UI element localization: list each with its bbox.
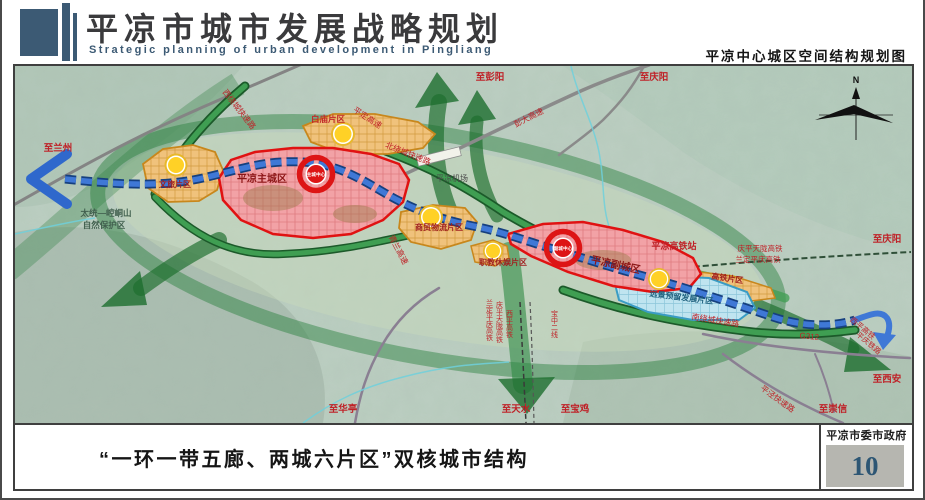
city-core-label: 主城中心 [307, 171, 326, 178]
page-subtitle: Strategic planning of urban development … [89, 44, 493, 56]
caption: “一环一带五廊、两城六片区”双核城市结构 [99, 425, 529, 489]
info-box: 平凉市委市政府 10 [819, 425, 912, 489]
map-title: 平凉中心城区空间结构规划图 [706, 45, 908, 65]
destination-label: 至庆阳 [640, 71, 669, 83]
district-label: 白庙片区 [311, 114, 346, 124]
railway-label: 庆平天陇高铁 [738, 243, 783, 253]
destination-label: 至崇信 [819, 403, 848, 415]
compass-label: N [853, 75, 860, 85]
destination-label: 至华亭 [329, 403, 358, 415]
district-label: 商贸物流片区 [415, 222, 463, 232]
logo-bar [62, 3, 70, 61]
station-label: 平凉机场 [436, 173, 468, 183]
city-label: 平凉主城区 [237, 172, 287, 185]
planning-map: 主城中心 副城中心 N 平凉主城区 平凉副城区 文旅片区 白庙片区 [15, 66, 912, 423]
railway-label: 庆平天陇高铁 [496, 300, 504, 344]
page-number: 10 [826, 445, 904, 487]
district-center-icon [331, 122, 355, 146]
nature-reserve-label: 太统—崆峒山 [79, 208, 131, 218]
railway-label: 宝中二线 [551, 309, 559, 338]
map-frame: 主城中心 副城中心 N 平凉主城区 平凉副城区 文旅片区 白庙片区 [13, 64, 914, 425]
destination-label: 至宝鸡 [561, 403, 590, 415]
footer: “一环一带五廊、两城六片区”双核城市结构 平凉市委市政府 10 [13, 425, 914, 491]
railway-label: 兰定平庆高铁 [736, 254, 781, 264]
district-label: 文旅片区 [159, 179, 191, 189]
destination-label: 至兰州 [44, 142, 73, 154]
destination-label: 至彭阳 [476, 71, 505, 83]
destination-label: 至天水 [502, 403, 531, 415]
district-center-icon [165, 154, 188, 177]
district-label: 职教休娱片区 [479, 257, 527, 267]
station-label: 平凉高铁站 [651, 240, 696, 251]
city-core-label: 副城中心 [554, 245, 573, 252]
destination-label: 至西安 [873, 373, 902, 385]
slide-page: 平凉市城市发展战略规划 Strategic planning of urban … [0, 0, 925, 500]
logo-mark [20, 9, 58, 56]
railway-label: 兰定平庆高铁 [486, 298, 494, 342]
logo-bar [73, 13, 77, 61]
nature-reserve-label: 自然保护区 [83, 220, 126, 230]
district-center-icon [648, 268, 670, 290]
agency-label: 平凉市委市政府 [821, 425, 912, 445]
destination-label: 至庆阳 [873, 233, 902, 245]
railway-label: 西平高铁 [506, 310, 514, 339]
